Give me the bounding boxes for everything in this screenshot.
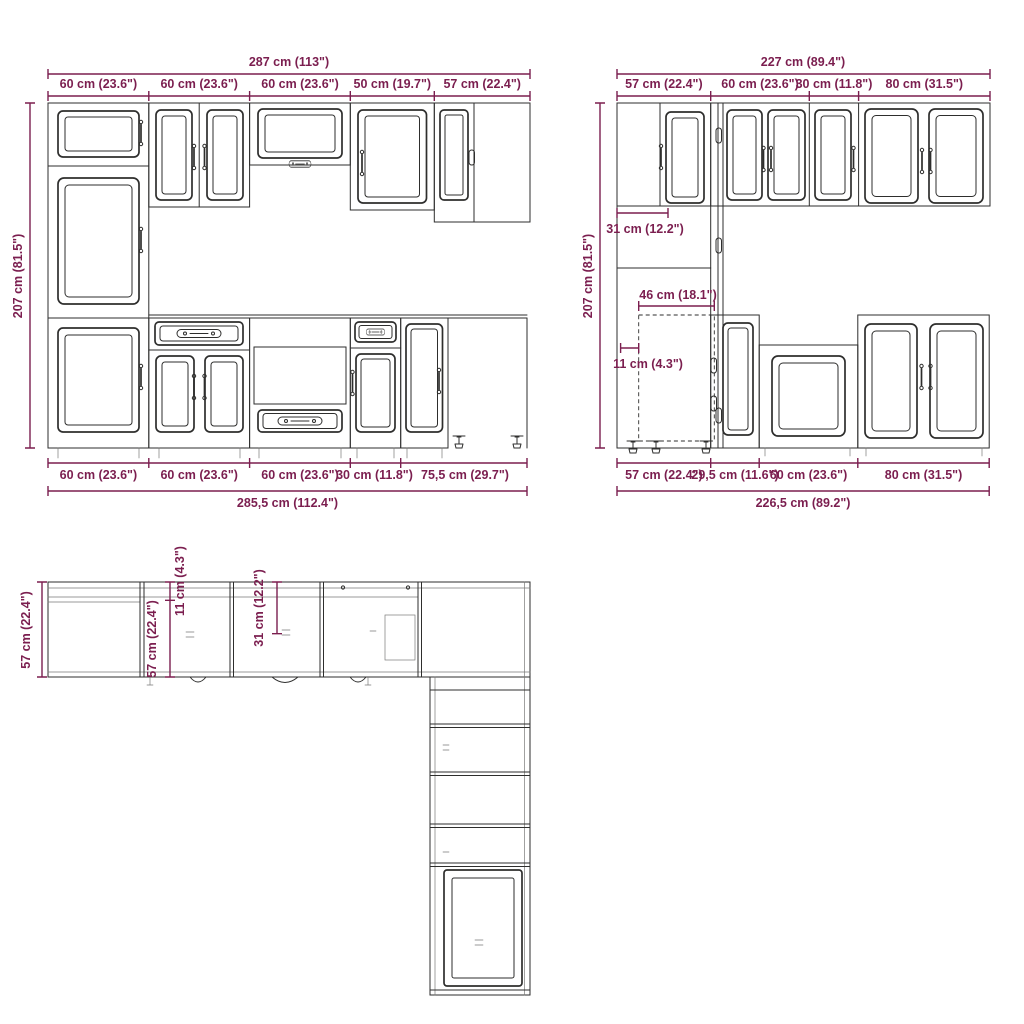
front-hood-cabinet bbox=[250, 103, 351, 167]
side-corner-unit bbox=[617, 103, 714, 453]
front-dim-seg-top-3: 60 cm (23.6") bbox=[261, 77, 339, 91]
kitchen-cabinet-dimension-diagram: 287 cm (113") 60 cm (23.6") 60 cm (23.6"… bbox=[0, 0, 1024, 1024]
side-elevation-view: 227 cm (89.4") 57 cm (22.4") 60 cm (23.6… bbox=[581, 55, 990, 510]
plan-dim-outer-depth: 57 cm (22.4") bbox=[19, 591, 33, 669]
side-dim-line-plinth-offset bbox=[621, 343, 639, 353]
front-dim-total-bottom: 285,5 cm (112.4") bbox=[237, 496, 338, 510]
plan-horizontal-run bbox=[48, 582, 530, 685]
front-dim-seg-bottom-3: 60 cm (23.6") bbox=[261, 468, 339, 482]
front-dim-line-height bbox=[25, 103, 35, 448]
side-wall-cabinets bbox=[711, 103, 990, 206]
front-dim-total-top: 287 cm (113") bbox=[249, 55, 329, 69]
front-base-drawer-2door bbox=[149, 318, 250, 448]
side-dim-line-wall-depth bbox=[617, 208, 668, 218]
side-dim-seg-bottom-3: 60 cm (23.6") bbox=[770, 468, 848, 482]
plan-dim-wall-depth: 31 cm (12.2") bbox=[252, 569, 266, 647]
front-dim-line-segments-bottom bbox=[48, 458, 527, 468]
front-wall-cabinet-2door bbox=[149, 103, 250, 207]
front-base-30-cabinet bbox=[350, 318, 400, 448]
plan-dim-line-wall-depth bbox=[272, 582, 282, 634]
plan-view: 57 cm (22.4") 57 cm (22.4") 11 cm (4.3")… bbox=[19, 546, 530, 995]
side-dim-line-base-depth bbox=[639, 301, 715, 311]
front-plinth-feet bbox=[58, 448, 442, 458]
front-base-door-cabinet bbox=[401, 318, 448, 448]
side-hidden-corner-base bbox=[639, 315, 715, 441]
front-dim-seg-bottom-4: 30 cm (11.8") bbox=[336, 468, 413, 482]
front-dim-line-segments-top bbox=[48, 91, 530, 101]
front-dim-seg-top-1: 60 cm (23.6") bbox=[60, 77, 138, 91]
front-dim-line-total-bottom bbox=[48, 486, 527, 496]
side-dim-seg-top-4: 80 cm (31.5") bbox=[886, 77, 964, 91]
front-tall-cabinet bbox=[48, 103, 149, 448]
front-oven-cavity-cabinet bbox=[250, 318, 351, 448]
front-wall-cabinet-50 bbox=[350, 103, 434, 210]
plan-dim-plinth-offset: 11 cm (4.3") bbox=[173, 546, 187, 616]
side-dim-plinth-offset: 11 cm (4.3") bbox=[613, 357, 683, 371]
front-open-appliance-space bbox=[453, 318, 527, 448]
front-corner-wall-cabinet bbox=[434, 103, 530, 222]
side-dim-line-height bbox=[595, 103, 605, 448]
side-dim-base-depth: 46 cm (18.1") bbox=[639, 288, 717, 302]
side-dim-seg-top-2: 60 cm (23.6") bbox=[721, 77, 799, 91]
diagram-canvas: 287 cm (113") 60 cm (23.6") 60 cm (23.6"… bbox=[0, 0, 1024, 1024]
side-dim-seg-bottom-2: 29,5 cm (11.6") bbox=[691, 468, 778, 482]
side-dim-seg-bottom-4: 80 cm (31.5") bbox=[885, 468, 963, 482]
front-elevation-view: 287 cm (113") 60 cm (23.6") 60 cm (23.6"… bbox=[11, 55, 530, 510]
front-dim-height: 207 cm (81.5") bbox=[11, 234, 25, 318]
side-dim-height: 207 cm (81.5") bbox=[581, 234, 595, 318]
front-dim-seg-bottom-1: 60 cm (23.6") bbox=[60, 468, 138, 482]
front-dim-seg-top-4: 50 cm (19.7") bbox=[354, 77, 432, 91]
front-dim-seg-top-5: 57 cm (22.4") bbox=[443, 77, 521, 91]
plan-dim-line-outer-depth bbox=[37, 582, 47, 677]
side-return-panel bbox=[716, 103, 723, 448]
front-dim-seg-bottom-5: 75,5 cm (29.7") bbox=[421, 468, 509, 482]
front-dim-seg-top-2: 60 cm (23.6") bbox=[160, 77, 238, 91]
side-dim-seg-top-1: 57 cm (22.4") bbox=[625, 77, 703, 91]
side-dim-line-segments-bottom bbox=[617, 458, 989, 468]
plan-vertical-run bbox=[430, 582, 530, 995]
side-dim-seg-top-3: 30 cm (11.8") bbox=[796, 77, 873, 91]
side-dim-line-total-bottom bbox=[617, 486, 989, 496]
side-base-cabinets bbox=[711, 315, 989, 456]
side-dim-total-bottom: 226,5 cm (89.2") bbox=[756, 496, 851, 510]
side-dim-wall-depth: 31 cm (12.2") bbox=[606, 222, 684, 236]
plan-door-handles bbox=[190, 677, 366, 683]
plan-dim-inner-depth: 57 cm (22.4") bbox=[145, 600, 159, 678]
side-dim-total-top: 227 cm (89.4") bbox=[761, 55, 845, 69]
side-dim-line-segments-top bbox=[617, 91, 990, 101]
front-dim-seg-bottom-2: 60 cm (23.6") bbox=[160, 468, 238, 482]
